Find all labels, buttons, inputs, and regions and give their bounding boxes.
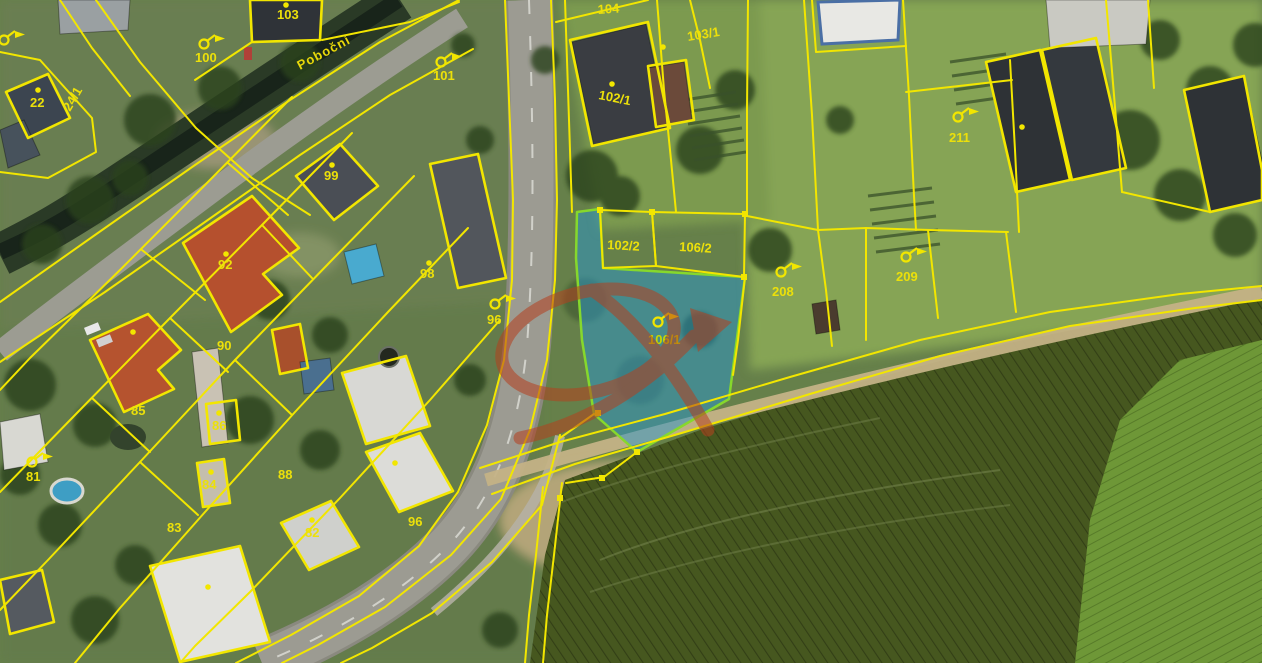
parcel-number-label: 103: [277, 7, 299, 22]
parcel-number-label: 101: [433, 68, 455, 83]
parcel-number-label: 96: [408, 514, 422, 529]
building-dot: [130, 329, 136, 335]
building-dot: [329, 162, 335, 168]
boundary-node: [649, 209, 655, 215]
parcel-number-label: 92: [218, 257, 232, 272]
building-dot: [216, 410, 222, 416]
parcel-number-label: 102/2: [607, 237, 640, 254]
parcel-number-label: 82: [305, 525, 319, 540]
parcel-number-label: 22: [30, 95, 44, 110]
boundary-node: [742, 211, 748, 217]
parcel-number-label: 88: [278, 467, 292, 482]
parcel-number-label: 100: [195, 50, 217, 65]
map-canvas[interactable]: 104103/1102/110310010124/122999290989685…: [0, 0, 1262, 663]
parcel-number-label: 104: [597, 0, 620, 17]
parcel-number-label: 99: [324, 168, 338, 183]
parcel-number-label: 83: [167, 520, 181, 535]
building-dot: [205, 584, 211, 590]
parcel-number-label: 81: [26, 469, 40, 484]
building-dot: [223, 251, 229, 257]
building-dot: [309, 517, 315, 523]
parcel-number-label: 209: [896, 269, 918, 284]
map-viewport[interactable]: 104103/1102/110310010124/122999290989685…: [0, 0, 1262, 663]
parcel-number-label: 211: [949, 130, 970, 145]
building-dot: [35, 87, 41, 93]
building-dot: [609, 81, 615, 87]
building-dot: [1019, 124, 1025, 130]
building-dot: [208, 469, 214, 475]
parcel-number-label: 85: [131, 403, 145, 418]
parcel-number-label: 86: [212, 418, 226, 433]
parcel-number-label: 98: [420, 266, 434, 281]
building-dot: [660, 44, 666, 50]
building-dot: [392, 460, 398, 466]
parcel-number-label: 208: [772, 284, 794, 299]
boundary-node: [634, 449, 640, 455]
parcel-number-label: 106/2: [679, 239, 712, 256]
parcel-number-label: 96: [487, 312, 501, 327]
parcel-number-label: 90: [217, 338, 231, 353]
boundary-node: [741, 274, 747, 280]
boundary-node: [557, 495, 563, 501]
parcel-number-label: 84: [202, 477, 217, 492]
boundary-node: [599, 475, 605, 481]
boundary-node: [597, 207, 603, 213]
building-dot: [426, 260, 432, 266]
